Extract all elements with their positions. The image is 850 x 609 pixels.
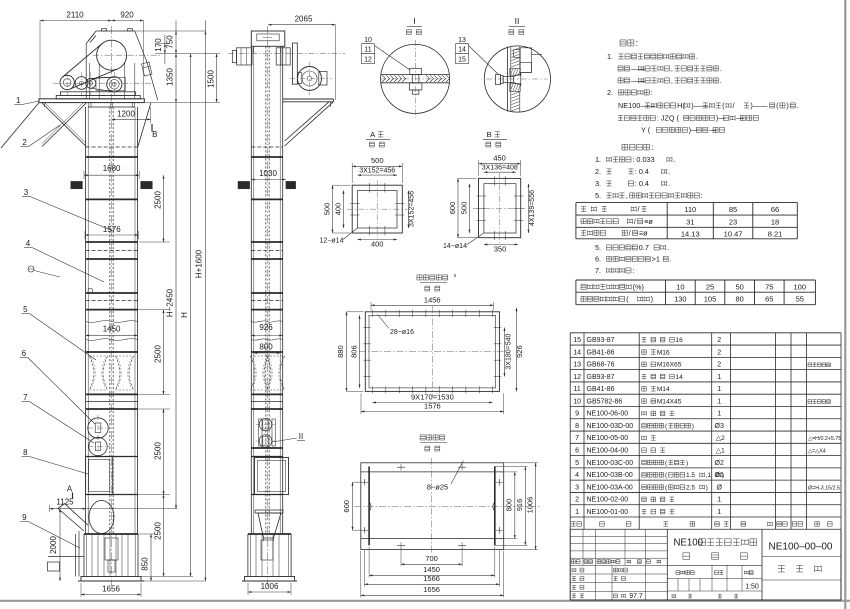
svg-text:14: 14 <box>458 47 466 54</box>
svg-text:8: 8 <box>575 423 579 430</box>
svg-text:2500: 2500 <box>154 345 163 363</box>
svg-text:: JZQ (: : JZQ ( <box>657 114 680 123</box>
svg-text:1: 1 <box>717 386 721 393</box>
svg-text:500: 500 <box>323 203 332 216</box>
svg-text:H−2450: H−2450 <box>166 288 175 317</box>
svg-text:800: 800 <box>259 343 273 352</box>
svg-text:M14: M14 <box>657 386 670 393</box>
svg-text:3X180=540: 3X180=540 <box>505 333 512 369</box>
svg-text:800: 800 <box>505 499 514 512</box>
svg-text:B: B <box>487 130 492 139</box>
svg-text:1: 1 <box>717 374 721 381</box>
svg-text:12: 12 <box>573 374 581 381</box>
svg-text::: : <box>701 191 703 200</box>
svg-text:.: . <box>667 243 669 252</box>
svg-text:3: 3 <box>24 188 29 197</box>
svg-text:14−ø14: 14−ø14 <box>443 243 467 250</box>
svg-text:M16: M16 <box>657 349 670 356</box>
svg-text:1: 1 <box>717 509 721 516</box>
svg-text:11: 11 <box>364 47 371 54</box>
svg-text:1576: 1576 <box>103 225 121 234</box>
svg-text:23: 23 <box>729 217 737 226</box>
svg-text:13: 13 <box>573 362 581 369</box>
svg-text:Ø: Ø <box>716 484 722 491</box>
svg-text:14: 14 <box>675 374 683 381</box>
svg-text:1576: 1576 <box>424 402 441 411</box>
svg-text:.: . <box>720 76 722 85</box>
svg-text::: : <box>651 143 653 152</box>
svg-text:NE100-02-00: NE100-02-00 <box>587 497 629 504</box>
svg-text:500: 500 <box>460 202 469 215</box>
svg-text:9: 9 <box>22 513 27 522</box>
svg-text:,1: ,1 <box>706 472 712 479</box>
svg-text:.: . <box>670 255 672 264</box>
svg-text::: : <box>636 38 638 48</box>
svg-text:4: 4 <box>26 239 31 248</box>
svg-text:450: 450 <box>493 154 506 163</box>
svg-text:16: 16 <box>675 337 683 344</box>
svg-text:△=△X4: △=△X4 <box>808 449 826 455</box>
svg-text:2500: 2500 <box>154 522 163 540</box>
svg-text:1:50: 1:50 <box>745 584 759 591</box>
svg-text:2.: 2. <box>595 167 601 176</box>
svg-text:): ) <box>686 460 688 467</box>
svg-text:170: 170 <box>154 38 163 52</box>
svg-text::: : <box>632 266 634 275</box>
svg-text:7.: 7. <box>595 266 601 275</box>
svg-text:920: 920 <box>120 11 134 20</box>
svg-text:1: 1 <box>16 96 21 105</box>
svg-text:75: 75 <box>765 282 773 291</box>
svg-text:5: 5 <box>23 305 28 314</box>
svg-text:: 0.4: : 0.4 <box>635 167 649 176</box>
svg-text:NE100-03D-00: NE100-03D-00 <box>587 423 634 430</box>
svg-text:806: 806 <box>350 345 359 358</box>
svg-text:15: 15 <box>573 337 581 344</box>
svg-text:926: 926 <box>259 323 273 332</box>
svg-text:880: 880 <box>336 345 345 358</box>
svg-text::: : <box>651 88 653 97</box>
svg-text:5: 5 <box>575 460 579 467</box>
svg-text:M14X45: M14X45 <box>657 398 682 405</box>
svg-text:.: . <box>797 101 799 110</box>
svg-text:10: 10 <box>364 37 372 44</box>
svg-text:1500: 1500 <box>207 70 216 88</box>
svg-text:1566: 1566 <box>423 574 440 583</box>
svg-text:8−ø25: 8−ø25 <box>427 483 448 492</box>
svg-text:8: 8 <box>23 448 28 457</box>
svg-text:2500: 2500 <box>154 442 163 460</box>
svg-text:NE100-03B-00: NE100-03B-00 <box>587 472 633 479</box>
svg-text:1.5: 1.5 <box>686 472 695 479</box>
svg-text:12: 12 <box>364 57 372 64</box>
svg-text:): ) <box>692 423 694 430</box>
svg-text:2000: 2000 <box>49 536 58 554</box>
svg-text:1656: 1656 <box>102 585 120 594</box>
svg-text:916: 916 <box>515 499 524 512</box>
svg-text:△2: △2 <box>716 435 725 442</box>
svg-text:A: A <box>67 485 73 494</box>
svg-text:110: 110 <box>684 205 696 214</box>
svg-text:): ) <box>651 295 653 304</box>
svg-text:NE100-06-00: NE100-06-00 <box>587 411 629 418</box>
svg-text:1200: 1200 <box>117 110 135 119</box>
svg-text:2110: 2110 <box>66 11 84 20</box>
svg-text:NE100-03C-00: NE100-03C-00 <box>587 460 634 467</box>
svg-text:NE100: NE100 <box>673 538 703 549</box>
svg-text:7: 7 <box>575 435 579 442</box>
svg-text:1656: 1656 <box>423 585 440 594</box>
svg-text:(%): (%) <box>633 282 644 291</box>
svg-text:3X152=456: 3X152=456 <box>409 191 416 227</box>
svg-text:NE100-05-00: NE100-05-00 <box>587 435 629 442</box>
svg-text:GB41-86: GB41-86 <box>587 386 615 393</box>
svg-text:500: 500 <box>371 156 384 165</box>
svg-text:)—: )— <box>689 126 699 135</box>
svg-text:GB41-86: GB41-86 <box>587 349 615 356</box>
svg-text:.: . <box>668 179 670 188</box>
svg-text:△1: △1 <box>716 448 725 455</box>
svg-text:1: 1 <box>717 497 721 504</box>
svg-text:4: 4 <box>575 472 579 479</box>
svg-text:8.21: 8.21 <box>768 230 783 239</box>
svg-text:I: I <box>413 16 415 26</box>
svg-text:6: 6 <box>22 349 27 358</box>
svg-text:80: 80 <box>735 295 743 304</box>
svg-text:H: H <box>180 312 189 318</box>
svg-text:3.: 3. <box>595 179 601 188</box>
svg-text:4X139=556: 4X139=556 <box>529 190 536 226</box>
svg-text:H+1600: H+1600 <box>195 249 204 278</box>
svg-text:6: 6 <box>575 448 579 455</box>
svg-text:,: , <box>626 191 628 200</box>
svg-text:GB93-87: GB93-87 <box>587 337 615 344</box>
svg-text:.: . <box>720 64 722 73</box>
svg-text:): ) <box>786 101 788 110</box>
svg-text:15: 15 <box>458 57 466 64</box>
svg-text:,: , <box>671 64 673 73</box>
svg-text:600: 600 <box>342 500 351 513</box>
svg-text:: 0.033: : 0.033 <box>632 155 654 164</box>
svg-text:1350: 1350 <box>166 68 175 86</box>
svg-text:GB93-87: GB93-87 <box>587 374 615 381</box>
svg-text:66: 66 <box>771 205 779 214</box>
svg-text:130: 130 <box>674 295 687 304</box>
svg-text:850: 850 <box>141 557 150 571</box>
svg-text:H(: H( <box>677 101 685 110</box>
svg-text:,: , <box>671 76 673 85</box>
svg-text:1: 1 <box>575 509 579 516</box>
svg-text:105: 105 <box>704 295 717 304</box>
svg-text:2: 2 <box>717 362 721 369</box>
svg-text:3X136=408: 3X136=408 <box>482 165 518 172</box>
svg-text:9X170=1530: 9X170=1530 <box>411 393 454 402</box>
svg-text:5.: 5. <box>595 191 601 200</box>
svg-text:0.7: 0.7 <box>639 243 649 252</box>
svg-text:350: 350 <box>494 245 507 254</box>
svg-text:Ø3: Ø3 <box>715 423 724 430</box>
svg-text:II: II <box>299 432 303 441</box>
svg-text:.: . <box>673 155 675 164</box>
svg-text:A: A <box>370 130 376 139</box>
svg-text:6.: 6. <box>595 255 601 264</box>
svg-text:31: 31 <box>686 217 694 226</box>
svg-text:: 0.4: : 0.4 <box>635 179 649 188</box>
svg-text:≡ø: ≡ø <box>644 217 653 226</box>
svg-text:△=H/0.2+5.75: △=H/0.2+5.75 <box>808 436 841 442</box>
svg-text:1.: 1. <box>607 52 613 61</box>
svg-text:12−ø14: 12−ø14 <box>320 238 344 245</box>
svg-text:9: 9 <box>575 411 579 418</box>
svg-text:.: . <box>668 167 670 176</box>
svg-text:750: 750 <box>166 35 175 49</box>
svg-text:1.: 1. <box>595 155 601 164</box>
svg-text:25: 25 <box>706 282 714 291</box>
svg-text:1125: 1125 <box>56 498 74 507</box>
svg-text:3X152=456: 3X152=456 <box>359 168 395 175</box>
svg-text:14: 14 <box>573 349 581 356</box>
svg-text:Ø1: Ø1 <box>715 472 724 479</box>
svg-text:10: 10 <box>676 282 684 291</box>
svg-text:65: 65 <box>765 295 773 304</box>
svg-text:): ) <box>706 484 708 491</box>
svg-text:13: 13 <box>458 37 466 44</box>
svg-text:2.: 2. <box>607 88 613 97</box>
svg-text:1450: 1450 <box>103 325 121 334</box>
svg-text:1006: 1006 <box>525 497 534 514</box>
svg-text:Y (: Y ( <box>641 126 651 135</box>
svg-text:Ø2: Ø2 <box>715 460 724 467</box>
svg-text:400: 400 <box>334 203 343 216</box>
svg-text:2.5: 2.5 <box>686 484 695 491</box>
svg-text:II: II <box>454 273 457 278</box>
svg-text:1680: 1680 <box>103 164 121 173</box>
svg-text:10.47: 10.47 <box>724 230 743 239</box>
svg-text:97.7: 97.7 <box>629 593 643 600</box>
svg-text:3: 3 <box>575 484 579 491</box>
svg-text:B: B <box>152 130 157 139</box>
svg-text:NE100–00–00: NE100–00–00 <box>769 542 833 553</box>
svg-text:55: 55 <box>796 295 804 304</box>
svg-text:NE100-01-00: NE100-01-00 <box>587 509 629 516</box>
svg-text:50: 50 <box>735 282 743 291</box>
svg-text:11: 11 <box>573 386 580 393</box>
svg-text:1030: 1030 <box>259 169 277 178</box>
svg-text:Ø=H-3.15/2.5: Ø=H-3.15/2.5 <box>808 485 840 491</box>
svg-text:.: . <box>696 52 698 61</box>
svg-text:5.: 5. <box>595 243 601 252</box>
svg-text:1456: 1456 <box>424 295 441 304</box>
svg-text:2: 2 <box>717 349 721 356</box>
svg-text:II: II <box>515 16 520 26</box>
svg-text:700: 700 <box>425 554 438 563</box>
svg-text:>1: >1 <box>652 255 660 264</box>
svg-text:2: 2 <box>22 138 27 147</box>
svg-text:NE100-04-00: NE100-04-00 <box>587 448 629 455</box>
svg-text:85: 85 <box>729 205 737 214</box>
svg-text:)——: )—— <box>750 101 768 110</box>
svg-text:GB5782-86: GB5782-86 <box>587 398 623 405</box>
svg-text:NE100-03A-00: NE100-03A-00 <box>587 484 633 491</box>
svg-text:1: 1 <box>717 411 721 418</box>
svg-text:926: 926 <box>515 345 524 358</box>
svg-text:14.13: 14.13 <box>681 230 700 239</box>
svg-text:100: 100 <box>793 282 806 291</box>
svg-text:1006: 1006 <box>261 582 279 591</box>
svg-text:≡ø: ≡ø <box>639 229 648 238</box>
svg-text:2500: 2500 <box>154 191 163 209</box>
svg-text:18: 18 <box>771 217 779 226</box>
svg-text:M16X65: M16X65 <box>657 362 682 369</box>
svg-text:2: 2 <box>575 497 579 504</box>
svg-text:600: 600 <box>448 202 457 215</box>
svg-text:7: 7 <box>23 393 28 402</box>
svg-text:2: 2 <box>717 337 721 344</box>
svg-text:400: 400 <box>371 240 384 249</box>
svg-text:10: 10 <box>573 398 581 405</box>
svg-text:2065: 2065 <box>295 15 313 24</box>
svg-text:1: 1 <box>717 398 721 405</box>
svg-text:1450: 1450 <box>423 565 440 574</box>
svg-text:GB68-76: GB68-76 <box>587 362 615 369</box>
svg-text:28−ø16: 28−ø16 <box>390 329 414 336</box>
